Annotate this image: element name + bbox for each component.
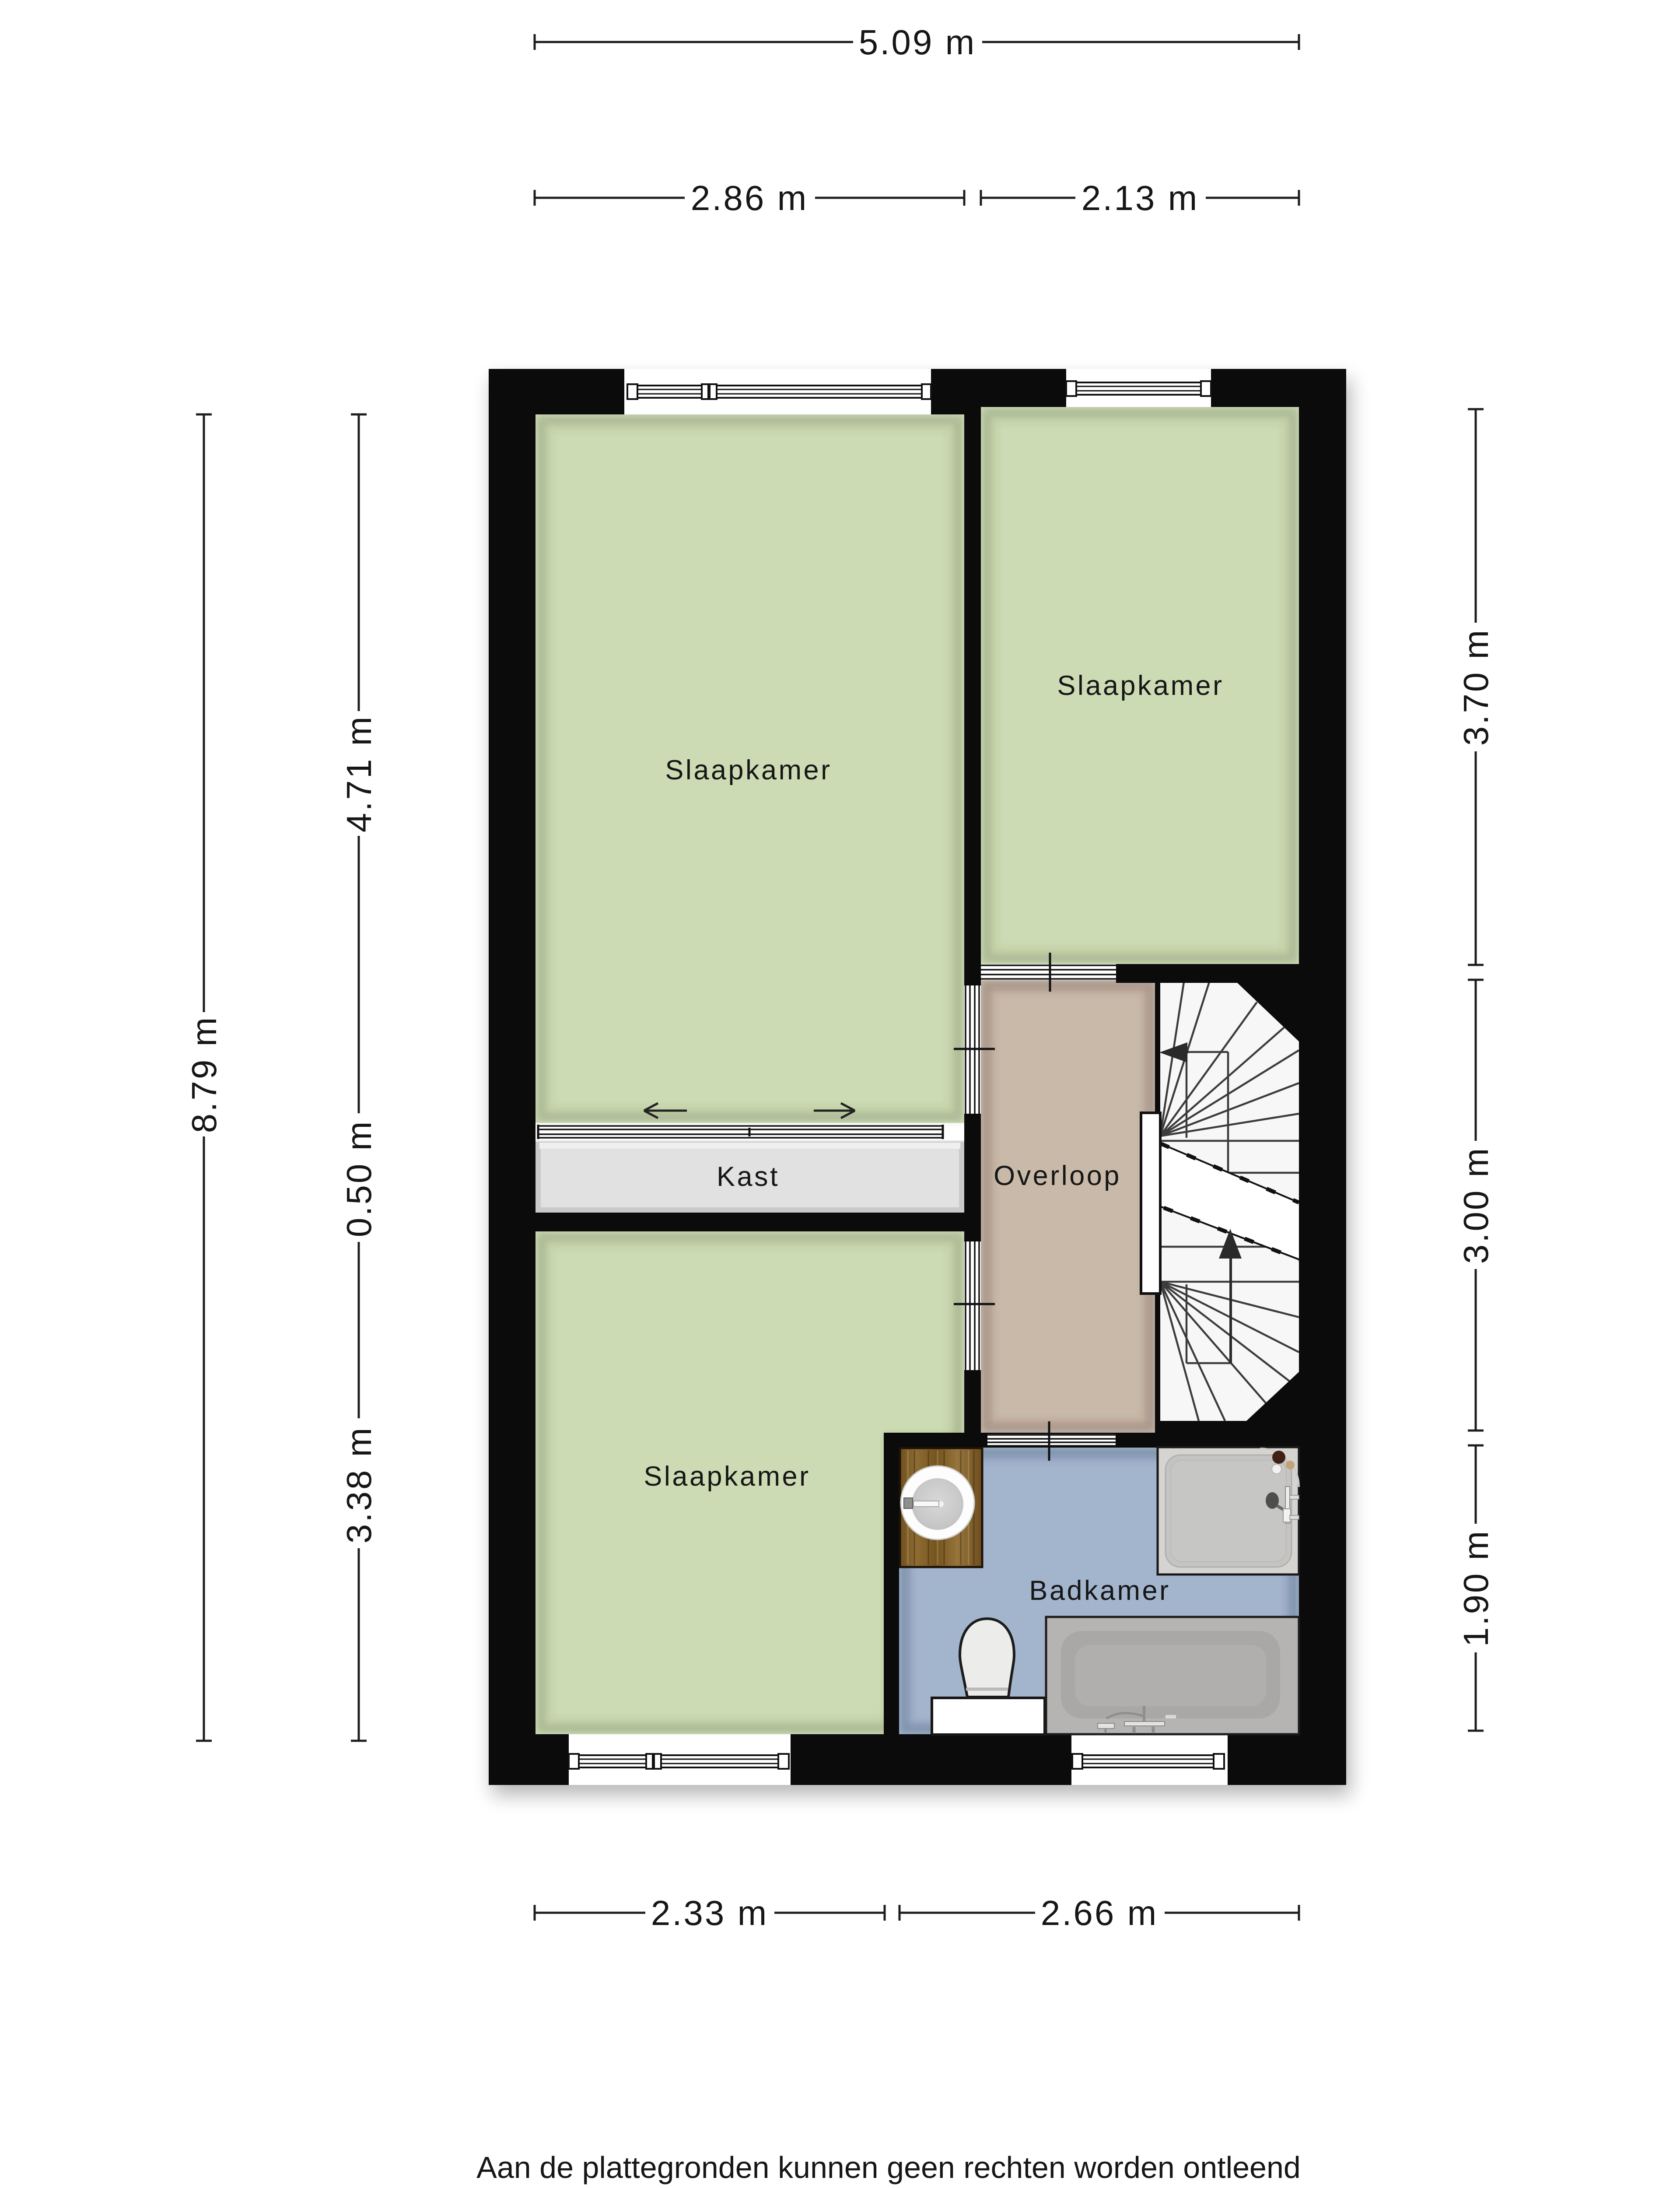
svg-text:2.13 m: 2.13 m [1081,179,1199,217]
svg-text:5.09 m: 5.09 m [859,23,976,62]
svg-text:2.66 m: 2.66 m [1041,1893,1158,1932]
svg-text:Kast: Kast [717,1161,780,1192]
svg-text:0.50 m: 0.50 m [339,1120,378,1238]
svg-text:1.90 m: 1.90 m [1456,1529,1495,1647]
svg-text:Overloop: Overloop [994,1161,1121,1191]
svg-text:Slaapkamer: Slaapkamer [665,755,832,785]
svg-text:3.38 m: 3.38 m [339,1426,378,1544]
svg-text:Slaapkamer: Slaapkamer [1057,670,1224,701]
svg-text:3.00 m: 3.00 m [1456,1147,1495,1264]
svg-text:Aan de plattegronden kunnen ge: Aan de plattegronden kunnen geen rechten… [476,2150,1301,2184]
svg-text:4.71 m: 4.71 m [339,715,378,833]
svg-text:8.79 m: 8.79 m [185,1016,224,1133]
svg-text:3.70 m: 3.70 m [1456,628,1495,746]
svg-text:2.33 m: 2.33 m [651,1893,769,1932]
svg-text:Slaapkamer: Slaapkamer [644,1461,810,1492]
svg-text:2.86 m: 2.86 m [691,179,808,217]
svg-text:Badkamer: Badkamer [1029,1575,1170,1606]
